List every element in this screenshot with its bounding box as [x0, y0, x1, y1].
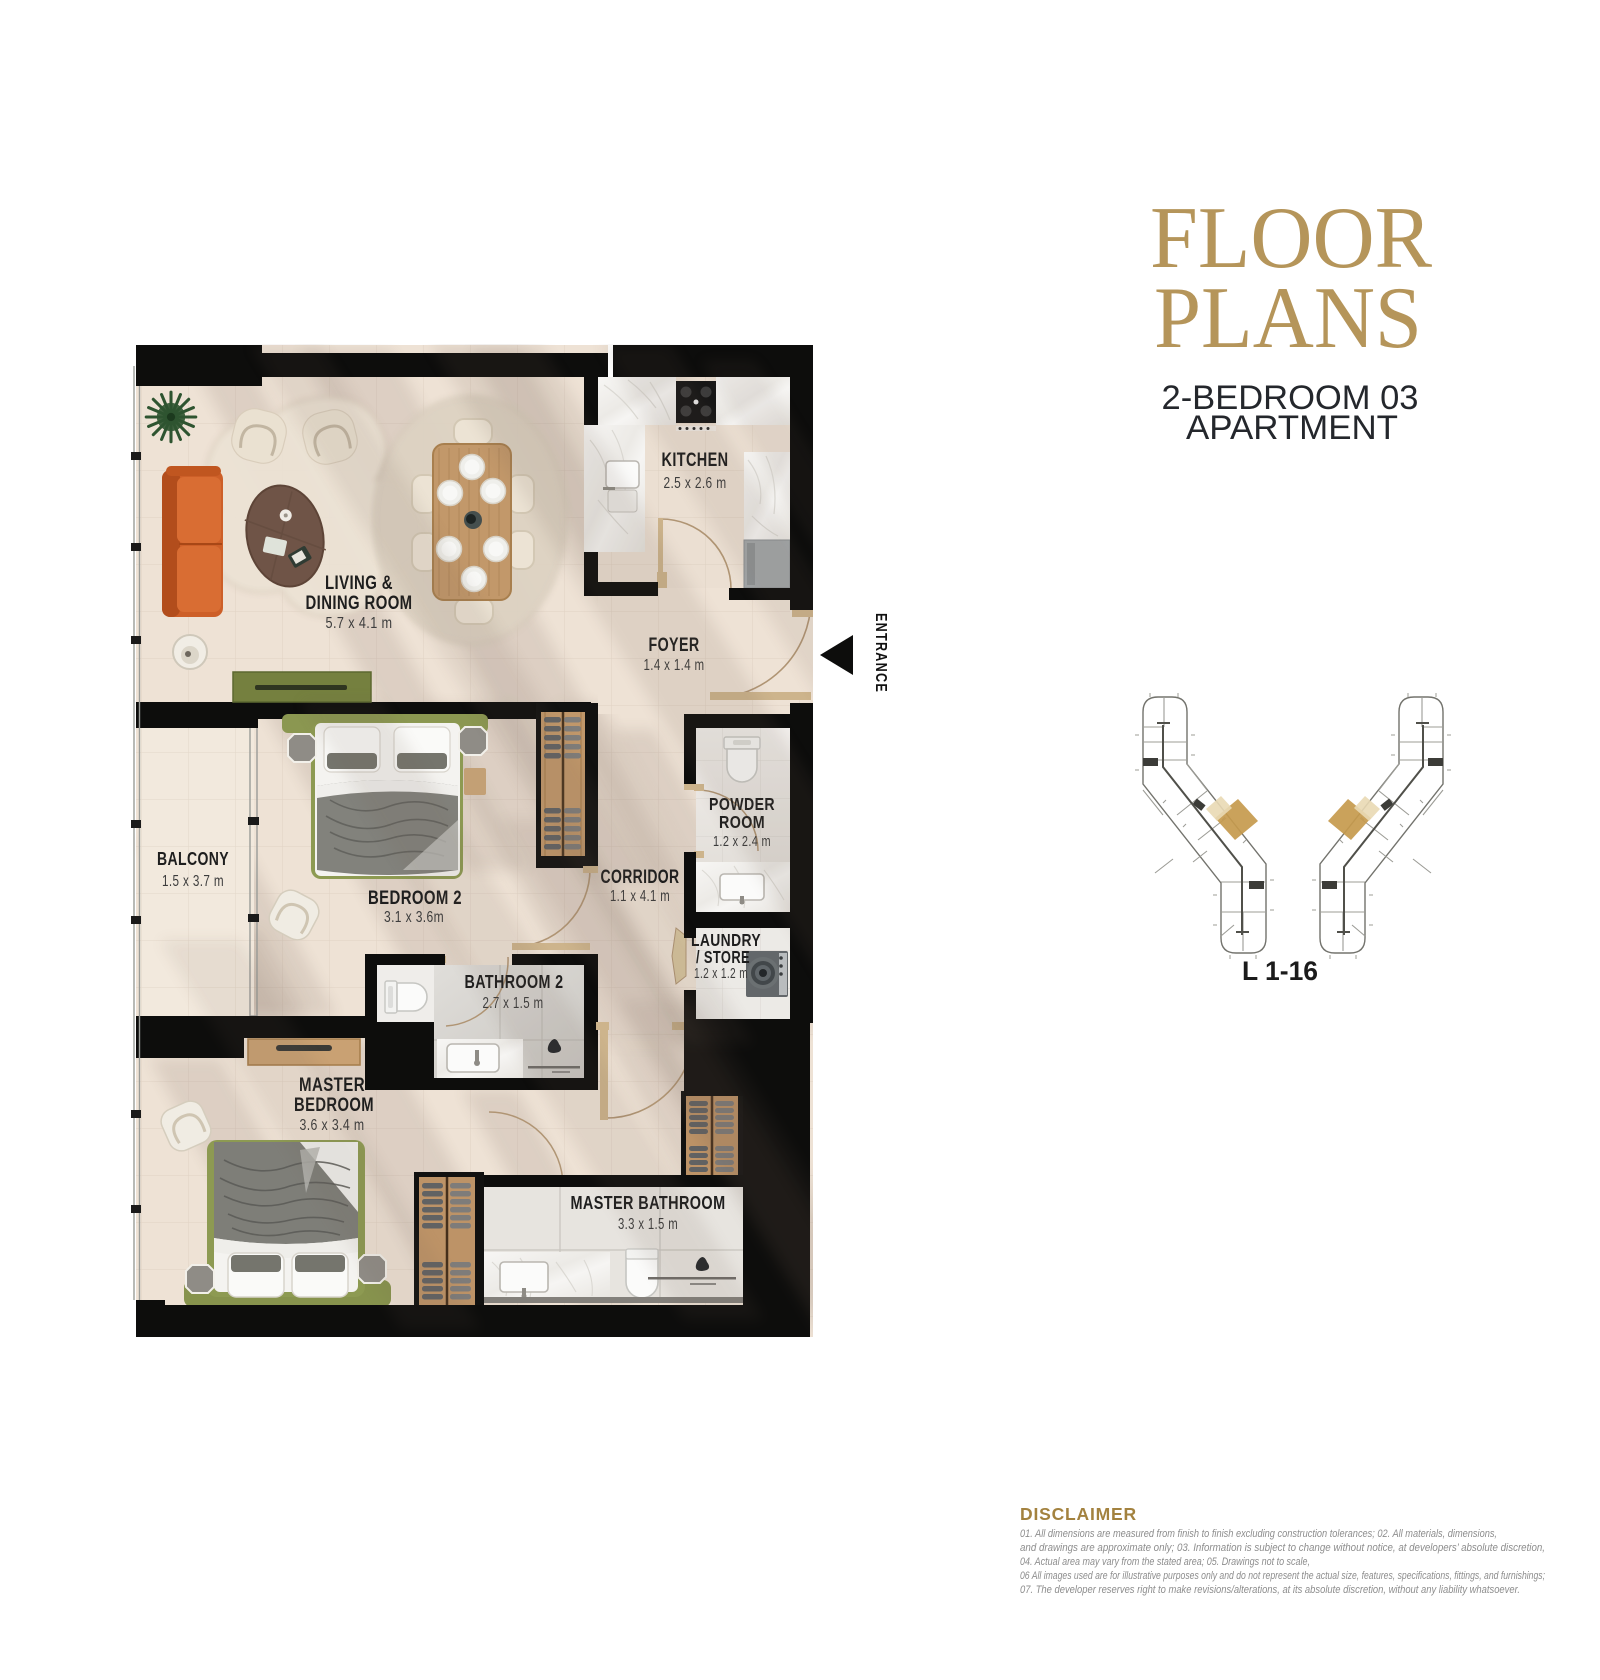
svg-text:06 All images used are for ill: 06 All images used are for illustrative …	[1020, 1570, 1545, 1582]
svg-text:1.5 x 3.7 m: 1.5 x 3.7 m	[162, 873, 224, 890]
svg-text:DISCLAIMER: DISCLAIMER	[1020, 1504, 1137, 1524]
svg-text:APARTMENT: APARTMENT	[1186, 409, 1398, 447]
svg-text:01. All dimensions are measure: 01. All dimensions are measured from fin…	[1020, 1528, 1497, 1540]
svg-text:04. Actual area may vary from: 04. Actual area may vary from the stated…	[1020, 1556, 1310, 1568]
svg-text:BALCONY: BALCONY	[157, 849, 229, 869]
svg-text:07. The developer reserves rig: 07. The developer reserves right to make…	[1020, 1584, 1520, 1596]
svg-text:L 1-16: L 1-16	[1242, 956, 1318, 986]
svg-text:ENTRANCE: ENTRANCE	[872, 613, 889, 693]
svg-text:and drawings are approximate o: and drawings are approximate only; 03. I…	[1020, 1542, 1545, 1554]
svg-text:PLANS: PLANS	[1154, 270, 1422, 367]
svg-text:5.7 x 4.1 m: 5.7 x 4.1 m	[326, 615, 393, 632]
svg-text:DINING ROOM: DINING ROOM	[306, 593, 413, 614]
svg-text:LIVING &: LIVING &	[325, 573, 393, 594]
